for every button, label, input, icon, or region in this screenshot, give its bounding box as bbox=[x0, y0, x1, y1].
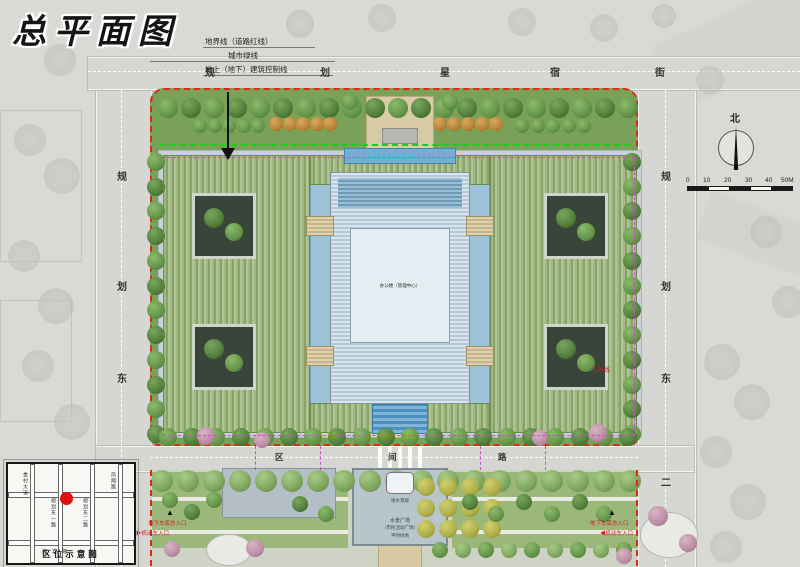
tree-icon bbox=[750, 216, 782, 248]
tree-icon bbox=[679, 534, 697, 552]
tree-icon bbox=[546, 119, 560, 133]
site-plan-canvas: 办公楼（管理中心） 喷水景观 水景广场 （市民活动广场） 平时绿地 总平面图 地… bbox=[0, 0, 800, 567]
tree-icon bbox=[730, 484, 766, 520]
tree-icon bbox=[432, 542, 448, 558]
tree-icon bbox=[531, 119, 545, 133]
tree-icon bbox=[704, 344, 740, 380]
road-label-char: 划 bbox=[320, 64, 330, 79]
round-plaza bbox=[206, 534, 252, 566]
tree-icon bbox=[483, 478, 501, 496]
tree-icon bbox=[22, 350, 54, 382]
road-centerline bbox=[665, 90, 666, 567]
scale-tick: 50M bbox=[781, 177, 794, 184]
tree-icon bbox=[342, 94, 358, 110]
annotation-arrow bbox=[227, 92, 229, 148]
tree-icon bbox=[503, 98, 523, 118]
tree-icon bbox=[478, 542, 494, 558]
tree-icon bbox=[250, 98, 270, 118]
plaza-path bbox=[152, 530, 348, 534]
location-inset-map: 金村大道 规划东一路 规划东二路 凤翔路 迎宾路 区位示意图 bbox=[6, 462, 136, 565]
tree-icon bbox=[508, 8, 536, 36]
tree-icon bbox=[461, 520, 479, 538]
scale-tick: 30 bbox=[745, 177, 752, 184]
tree-icon bbox=[475, 117, 489, 131]
tree-icon bbox=[616, 548, 632, 564]
legend-control-line: 地上（地下）建筑控制线 bbox=[205, 64, 288, 75]
tree-icon bbox=[281, 470, 303, 492]
tree-icon bbox=[515, 119, 529, 133]
tree-icon bbox=[388, 98, 408, 118]
tree-icon bbox=[541, 470, 563, 492]
tree-icon bbox=[222, 119, 236, 133]
vehicle-entrance-label: ◀机动车入口 bbox=[600, 529, 633, 537]
tree-icon bbox=[652, 4, 676, 28]
tree-icon bbox=[710, 531, 742, 563]
road-label-char: 间 bbox=[388, 451, 397, 463]
tree-icon bbox=[227, 98, 247, 118]
tree-icon bbox=[455, 542, 471, 558]
main-building-label: 办公楼（管理中心） bbox=[358, 283, 442, 289]
tree-icon bbox=[14, 124, 46, 156]
tree-icon bbox=[255, 470, 277, 492]
tree-icon bbox=[181, 98, 201, 118]
fountain-pavilion bbox=[386, 472, 414, 494]
inset-street-label: 金村大道 bbox=[22, 472, 29, 496]
scale-tick: 40 bbox=[765, 177, 772, 184]
inset-street-label: 规划东二路 bbox=[82, 498, 89, 528]
fountain-label: 喷水景观 bbox=[352, 498, 448, 504]
tree-icon bbox=[273, 98, 293, 118]
inset-street-label: 凤翔路 bbox=[110, 472, 117, 490]
tree-icon bbox=[590, 14, 618, 42]
tree-icon bbox=[158, 98, 178, 118]
vehicle-entrance-label: ▶机动车入口 bbox=[136, 529, 169, 537]
arrow-up-icon: ▲ bbox=[166, 508, 174, 517]
tree-icon bbox=[177, 470, 199, 492]
page-title: 总平面图 bbox=[12, 4, 180, 53]
tree-icon bbox=[310, 117, 324, 131]
red-line-south-west bbox=[150, 470, 152, 566]
tree-icon bbox=[269, 117, 283, 131]
road-label-char: 东 bbox=[117, 370, 127, 385]
tree-icon bbox=[700, 436, 732, 468]
tree-icon bbox=[206, 492, 222, 508]
plaza-label: 平时绿地 bbox=[352, 533, 448, 539]
tree-icon bbox=[204, 98, 224, 118]
tree-icon bbox=[593, 542, 609, 558]
tree-icon bbox=[229, 470, 251, 492]
north-label: 北 bbox=[730, 110, 740, 125]
tree-icon bbox=[480, 98, 500, 118]
tree-icon bbox=[368, 4, 396, 32]
tree-icon bbox=[365, 98, 385, 118]
tree-icon bbox=[696, 66, 724, 94]
road-label-char: 宿 bbox=[550, 64, 560, 79]
plaza-path bbox=[452, 497, 638, 501]
tree-icon bbox=[164, 541, 180, 557]
tree-icon bbox=[544, 506, 560, 522]
road-label-char: 街 bbox=[655, 64, 665, 79]
arrow-up-icon: ▲ bbox=[608, 508, 616, 517]
tree-icon bbox=[283, 117, 297, 131]
tree-icon bbox=[162, 492, 178, 508]
tree-icon bbox=[572, 98, 592, 118]
road-label-char: 区 bbox=[275, 451, 284, 463]
tree-icon bbox=[570, 542, 586, 558]
road-label-char: 路 bbox=[498, 451, 507, 463]
tree-icon bbox=[772, 286, 800, 318]
tree-icon bbox=[483, 520, 501, 538]
road-label-char: 星 bbox=[440, 64, 450, 79]
tree-icon bbox=[595, 98, 615, 118]
city-green-line bbox=[160, 144, 630, 146]
tree-icon bbox=[461, 117, 475, 131]
tree-icon bbox=[439, 478, 457, 496]
scale-segment bbox=[729, 186, 751, 191]
control-line-stub bbox=[545, 446, 546, 470]
scale-bar bbox=[688, 186, 793, 191]
building-control-line bbox=[163, 157, 635, 436]
tree-icon bbox=[734, 384, 770, 420]
tree-icon bbox=[208, 119, 222, 133]
road-label-char: 二 bbox=[661, 474, 671, 489]
tree-icon bbox=[251, 119, 265, 133]
plaza-label: （市民活动广场） bbox=[352, 525, 448, 531]
tree-icon bbox=[501, 542, 517, 558]
tree-icon bbox=[296, 98, 316, 118]
east-boundary-label: 东界线 bbox=[592, 365, 610, 374]
scale-tick: 20 bbox=[724, 177, 731, 184]
scale-segment bbox=[708, 186, 730, 191]
tree-icon bbox=[203, 470, 225, 492]
red-line-south-east bbox=[636, 470, 638, 566]
road-label-char: 划 bbox=[117, 278, 127, 293]
legend-boundary-line: 地界线（道路红线） bbox=[205, 36, 273, 47]
tree-icon bbox=[577, 119, 591, 133]
control-line-stub bbox=[320, 446, 321, 470]
inset-road-h bbox=[8, 540, 134, 546]
site-location-dot bbox=[60, 492, 73, 505]
tree-icon bbox=[333, 470, 355, 492]
tree-icon bbox=[184, 504, 200, 520]
tree-icon bbox=[411, 98, 431, 118]
tree-icon bbox=[442, 94, 458, 110]
tree-icon bbox=[489, 117, 503, 131]
tree-icon bbox=[457, 98, 477, 118]
scale-segment bbox=[687, 186, 709, 191]
road-label-char: 规 bbox=[117, 168, 127, 183]
tree-icon bbox=[237, 119, 251, 133]
legend-leader bbox=[203, 47, 315, 48]
inset-street-label: 规划东一路 bbox=[50, 498, 57, 528]
tree-icon bbox=[447, 117, 461, 131]
road-right bbox=[638, 57, 696, 567]
scale-tick: 10 bbox=[703, 177, 710, 184]
tree-icon bbox=[44, 158, 80, 194]
tree-icon bbox=[648, 506, 668, 526]
context-band bbox=[695, 191, 800, 279]
scale-tick: 0 bbox=[686, 177, 690, 184]
tree-icon bbox=[193, 119, 207, 133]
tree-icon bbox=[246, 539, 264, 557]
control-line-stub bbox=[255, 446, 256, 470]
tree-icon bbox=[296, 117, 310, 131]
tree-icon bbox=[572, 494, 588, 510]
inset-caption: 区位示意图 bbox=[8, 548, 134, 560]
legend-green-line: 城市绿线 bbox=[228, 50, 258, 61]
tree-icon bbox=[562, 119, 576, 133]
tree-icon bbox=[526, 98, 546, 118]
tree-icon bbox=[524, 542, 540, 558]
tree-icon bbox=[417, 478, 435, 496]
tree-icon bbox=[618, 98, 638, 118]
tree-icon bbox=[318, 506, 334, 522]
tree-icon bbox=[515, 470, 537, 492]
tree-icon bbox=[516, 494, 532, 510]
tree-icon bbox=[359, 470, 381, 492]
tree-icon bbox=[8, 240, 40, 272]
plaza-label: 水景广场 bbox=[352, 517, 448, 524]
crosswalk bbox=[378, 447, 422, 469]
tree-icon bbox=[292, 496, 308, 512]
control-line-stub bbox=[480, 446, 481, 470]
tree-icon bbox=[286, 10, 314, 38]
tree-icon bbox=[433, 117, 447, 131]
scale-segment bbox=[771, 186, 793, 191]
road-label-char: 规 bbox=[661, 168, 671, 183]
tree-icon bbox=[54, 404, 90, 440]
tree-icon bbox=[307, 470, 329, 492]
road-label-char: 东 bbox=[661, 370, 671, 385]
tree-icon bbox=[462, 494, 478, 510]
tree-icon bbox=[593, 470, 615, 492]
tree-icon bbox=[151, 470, 173, 492]
tree-icon bbox=[319, 98, 339, 118]
garage-entrance-label: 地下车库总入口 bbox=[590, 519, 629, 527]
legend-leader bbox=[150, 61, 335, 62]
tree-icon bbox=[547, 542, 563, 558]
tree-icon bbox=[567, 470, 589, 492]
legend-leader bbox=[203, 75, 333, 76]
tree-icon bbox=[488, 506, 504, 522]
road-label-char: 划 bbox=[661, 278, 671, 293]
tree-icon bbox=[38, 288, 74, 324]
scale-segment bbox=[750, 186, 772, 191]
tree-icon bbox=[323, 117, 337, 131]
garage-entrance-label: 地下车库总入口 bbox=[148, 519, 187, 527]
tree-icon bbox=[549, 98, 569, 118]
entry-gate-structure bbox=[382, 128, 418, 144]
